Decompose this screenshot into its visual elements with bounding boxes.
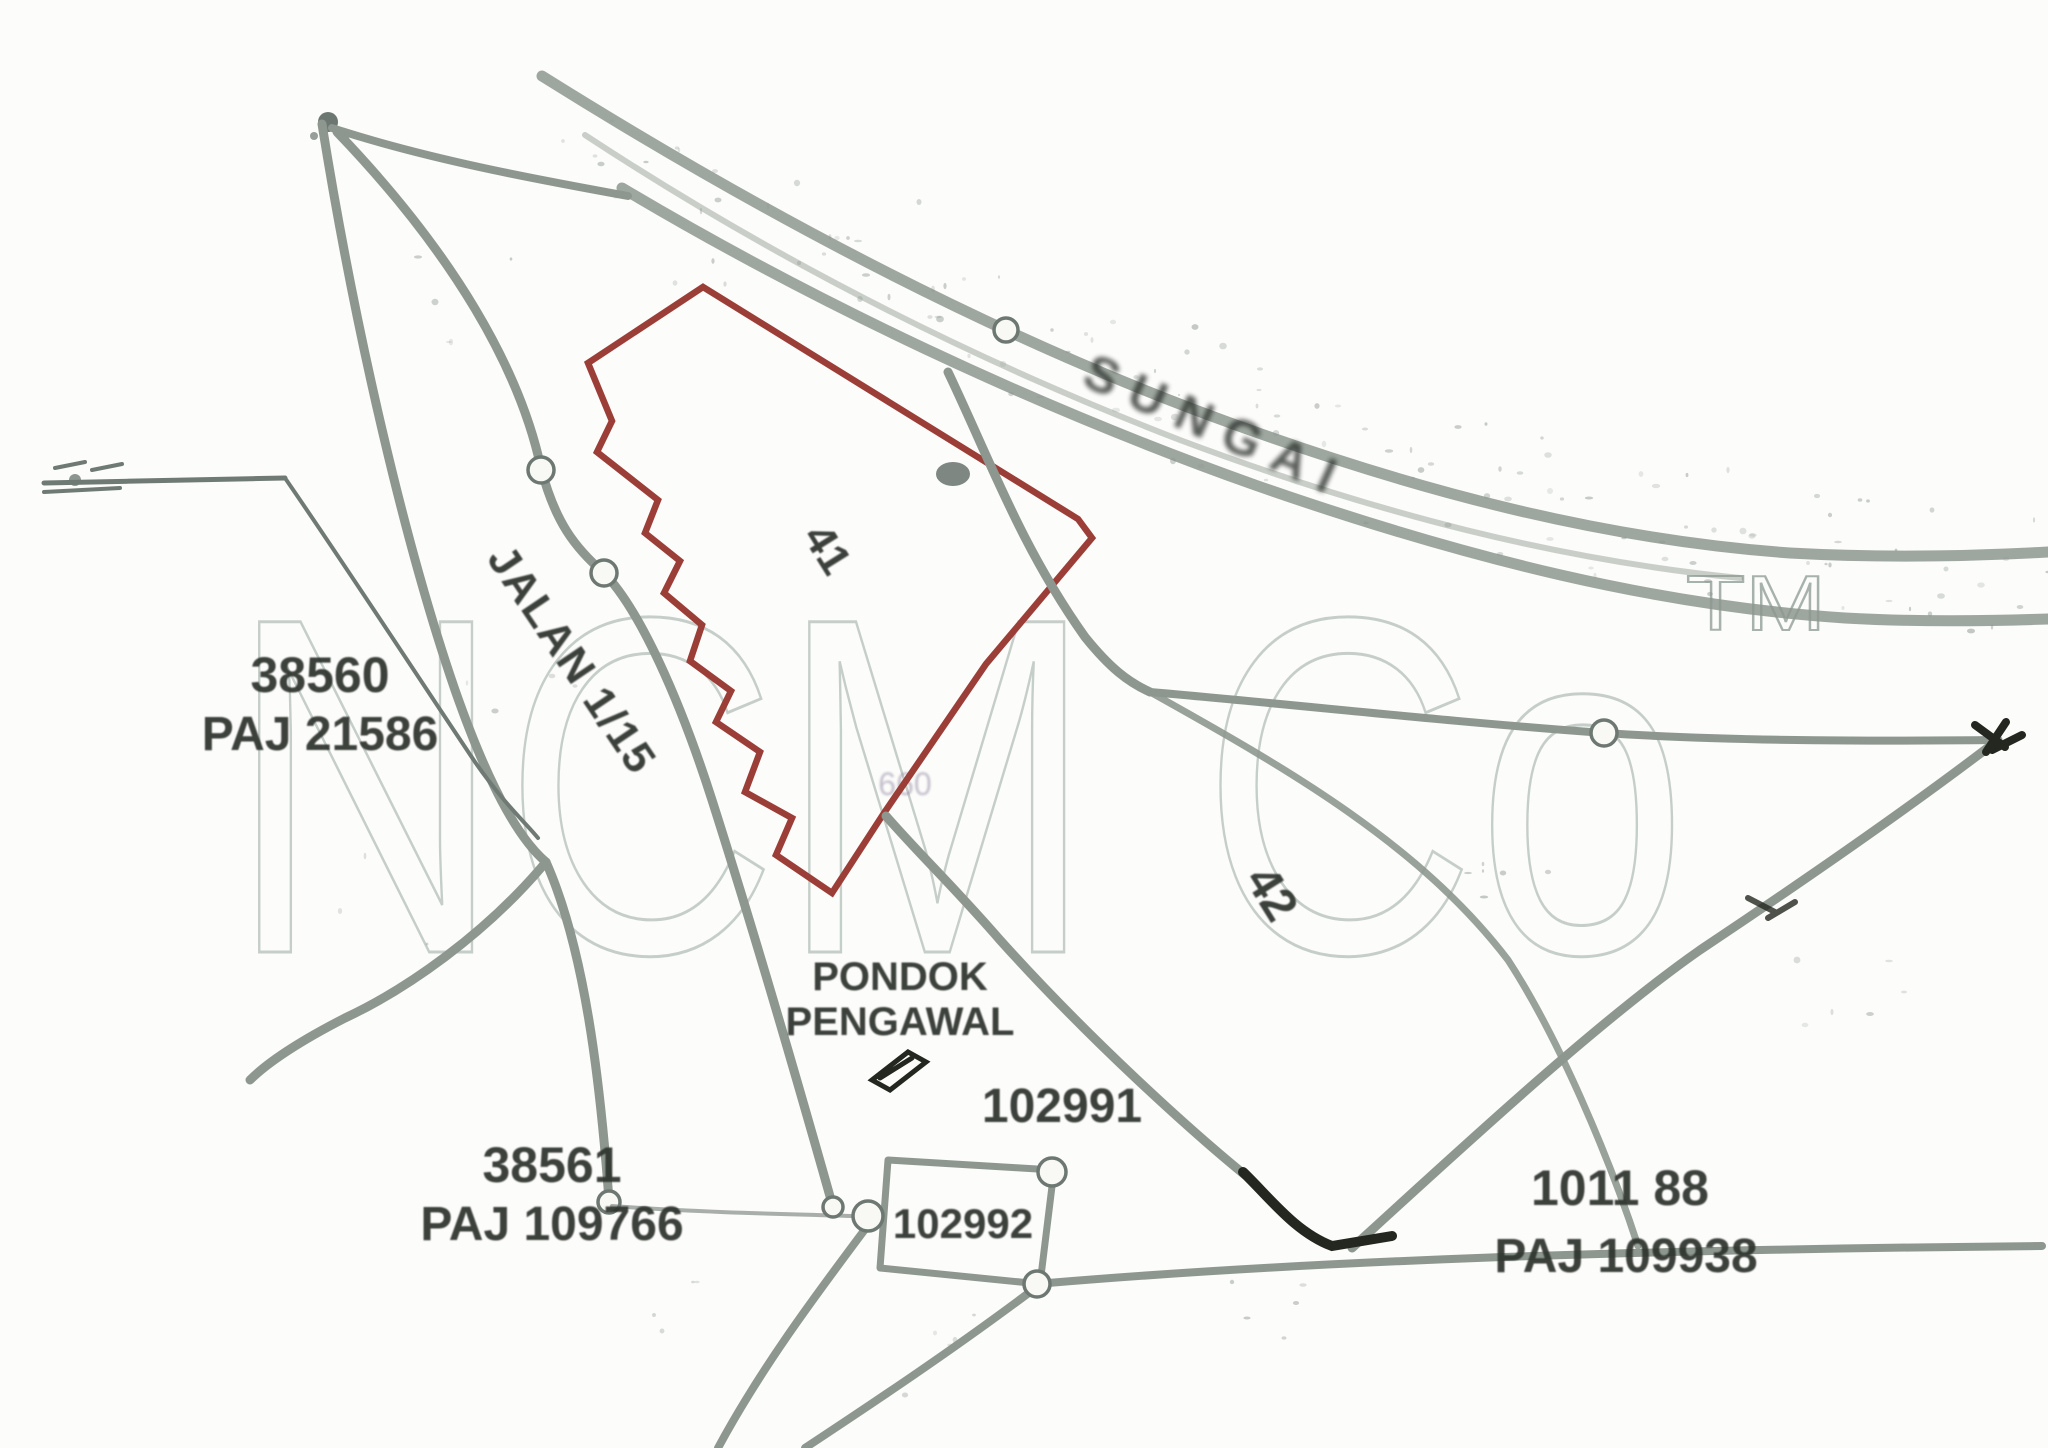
map-canvas: NCM Co TM 660 SUNGAI JALAN 1/15: [0, 0, 2048, 1448]
river-survey-node: [994, 318, 1018, 342]
survey-node: [1024, 1271, 1050, 1297]
lot-38561-number: 38561: [482, 1137, 621, 1193]
parcel-102991-label: 102991: [982, 1080, 1142, 1133]
survey-node: [591, 560, 617, 586]
parcel-102992-label: 102992: [893, 1200, 1033, 1247]
river-label: SUNGAI: [1076, 343, 1359, 510]
survey-node: [823, 1197, 843, 1217]
lot-1011-number: 1011 88: [1531, 1160, 1709, 1216]
lot-38560-number: 38560: [250, 647, 389, 703]
lot-38560-grant: PAJ 21586: [202, 708, 439, 761]
cadastral-map: NCM Co TM 660 SUNGAI JALAN 1/15: [0, 0, 2048, 1448]
lot-38561-grant: PAJ 109766: [420, 1198, 683, 1251]
guard-house-label-line1: PONDOK: [812, 955, 988, 999]
river-survey-blob: [936, 462, 970, 486]
road-south-east-line: [805, 1292, 1030, 1448]
bottom-parcels: 102991 102992: [612, 1080, 1142, 1448]
parcel42-dark-corner: [1243, 1172, 1392, 1246]
survey-node: [1591, 720, 1617, 746]
guard-house-label-line2: PENGAWAL: [786, 1000, 1015, 1044]
survey-node: [1038, 1158, 1066, 1186]
survey-node: [853, 1201, 883, 1231]
road-south-west-line: [718, 1228, 866, 1448]
guard-house: PONDOK PENGAWAL: [786, 955, 1015, 1090]
survey-node: [528, 457, 554, 483]
guard-house-arrow: [872, 1052, 926, 1090]
lot-1011-grant: PAJ 109938: [1494, 1230, 1757, 1283]
